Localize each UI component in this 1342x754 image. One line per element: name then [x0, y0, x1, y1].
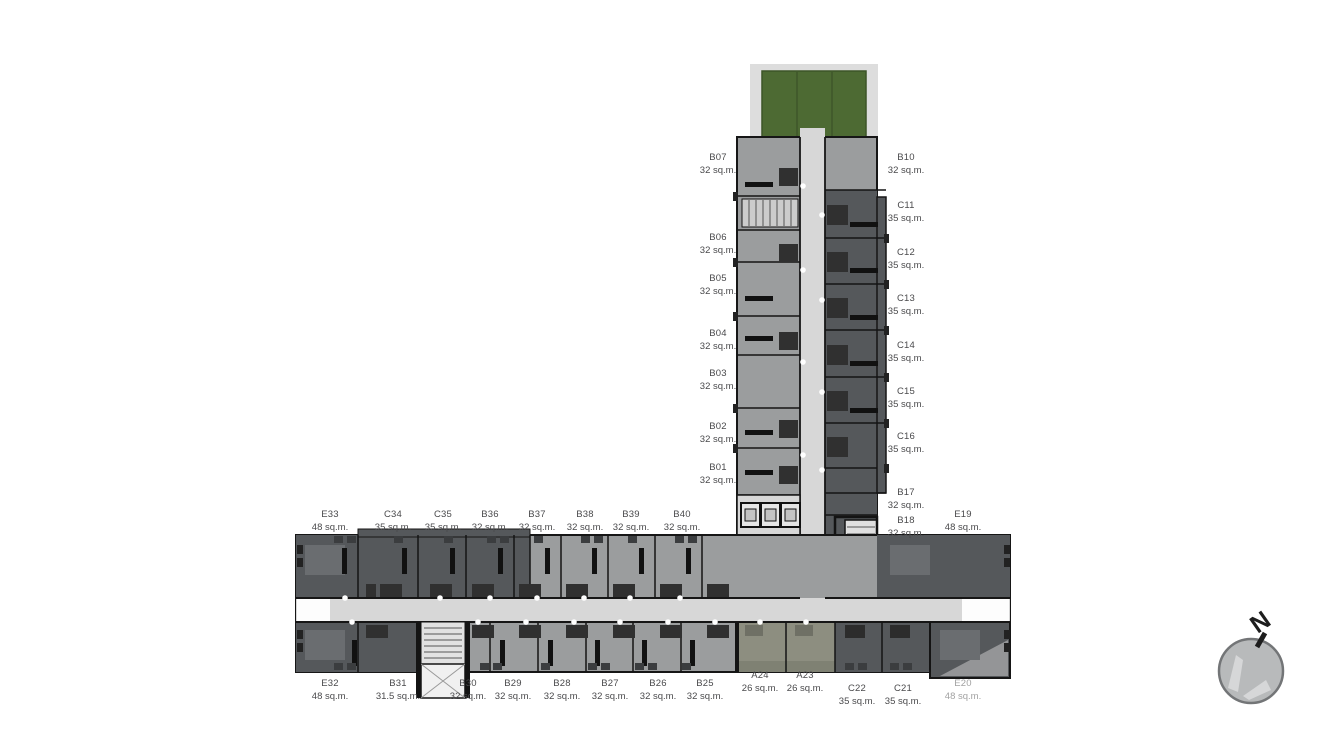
compass: N [1219, 606, 1283, 703]
compass-north-label: N [1245, 606, 1276, 639]
west-wing [296, 529, 1010, 698]
wing-stairwell [416, 622, 470, 698]
floor-plan-drawing: LIFT HALL FIREMAN LIFT [0, 0, 1342, 754]
floor-plan-page: LIFT HALL FIREMAN LIFT [0, 0, 1342, 754]
